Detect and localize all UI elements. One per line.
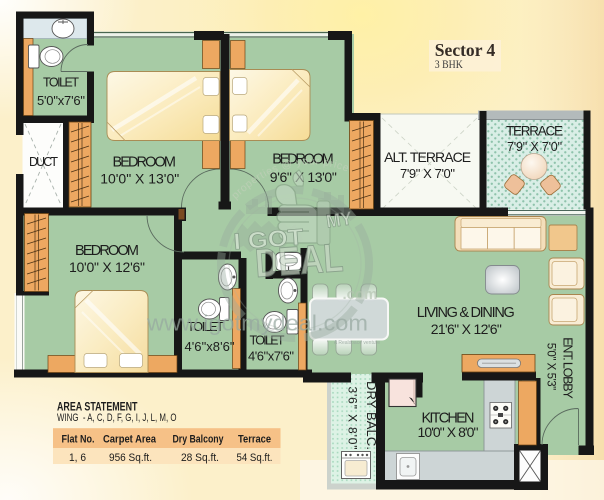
svg-text:Dry Balcony: Dry Balcony bbox=[173, 434, 225, 446]
svg-text:www.igotmydeal.com: www.igotmydeal.com bbox=[146, 311, 368, 336]
svg-text:28 Sq.ft.: 28 Sq.ft. bbox=[181, 452, 219, 464]
svg-text:54 Sq.ft.: 54 Sq.ft. bbox=[237, 452, 273, 464]
svg-text:ALT. TERRACE: ALT. TERRACE bbox=[384, 149, 471, 165]
svg-text:A Realspace venture: A Realspace venture bbox=[334, 340, 380, 346]
svg-text:5'0"x7'6": 5'0"x7'6" bbox=[37, 93, 85, 108]
svg-text:Flat No.: Flat No. bbox=[62, 434, 95, 446]
svg-text:LIVING & DINING: LIVING & DINING bbox=[417, 305, 515, 321]
svg-text:7'9" X 7'0": 7'9" X 7'0" bbox=[400, 166, 455, 181]
svg-text:TERRACE: TERRACE bbox=[506, 124, 563, 139]
svg-text:10'0" X 12'6": 10'0" X 12'6" bbox=[69, 259, 145, 275]
svg-text:3'6" X 8'0": 3'6" X 8'0" bbox=[346, 387, 360, 450]
svg-text:DEAL: DEAL bbox=[254, 236, 345, 286]
svg-text:3 BHK: 3 BHK bbox=[435, 57, 463, 71]
svg-text:Terrace: Terrace bbox=[238, 434, 271, 446]
svg-text:Carpet Area: Carpet Area bbox=[103, 434, 157, 446]
svg-text:7'9" X 7'0": 7'9" X 7'0" bbox=[507, 140, 562, 154]
svg-text:10'0" X 13'0": 10'0" X 13'0" bbox=[100, 171, 179, 187]
svg-text:WING - A, C, D, F, G, I, J, L: WING - A, C, D, F, G, I, J, L, M, O bbox=[57, 412, 177, 424]
svg-text:BEDROOM: BEDROOM bbox=[75, 243, 139, 259]
svg-text:TOILET: TOILET bbox=[43, 76, 79, 90]
svg-text:4'6"x7'6": 4'6"x7'6" bbox=[248, 349, 294, 364]
svg-text:DUCT: DUCT bbox=[29, 155, 58, 169]
svg-text:4'6"x8'6": 4'6"x8'6" bbox=[185, 339, 235, 354]
svg-text:956 Sq.ft.: 956 Sq.ft. bbox=[109, 452, 152, 464]
svg-text:21'6" X 12'6": 21'6" X 12'6" bbox=[431, 321, 502, 337]
svg-text:ENT. LOBBY: ENT. LOBBY bbox=[561, 337, 575, 399]
svg-text:1, 6: 1, 6 bbox=[69, 452, 86, 464]
svg-text:BEDROOM: BEDROOM bbox=[112, 155, 176, 171]
svg-text:.com: .com bbox=[342, 286, 377, 303]
svg-text:5'0" X 5'3": 5'0" X 5'3" bbox=[545, 343, 557, 391]
svg-text:10'0" X 8'0": 10'0" X 8'0" bbox=[418, 424, 479, 440]
svg-text:MY: MY bbox=[325, 208, 354, 232]
svg-text:DRY BALC.: DRY BALC. bbox=[364, 381, 379, 450]
